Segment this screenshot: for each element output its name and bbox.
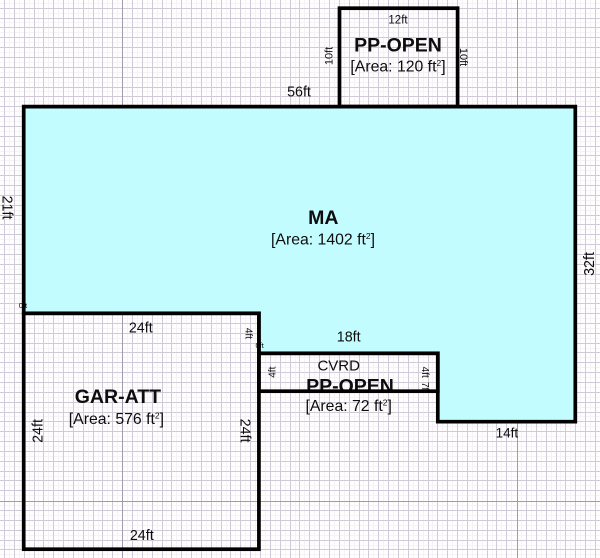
svg-text:PP-OPEN: PP-OPEN [306,376,394,398]
svg-text:[Area: 576 ft2]: [Area: 576 ft2] [69,410,164,428]
svg-text:PP-OPEN: PP-OPEN [354,35,442,57]
svg-text:12ft: 12ft [388,14,408,26]
svg-text:[Area: 72 ft2]: [Area: 72 ft2] [305,397,391,415]
svg-text:MA: MA [308,207,338,229]
svg-text:24ft: 24ft [129,320,153,336]
svg-text:32ft: 32ft [582,252,598,276]
svg-text:14ft: 14ft [496,426,519,441]
svg-text:24ft: 24ft [30,419,46,443]
svg-text:24ft: 24ft [130,528,154,544]
svg-text:18ft: 18ft [337,329,361,345]
svg-text:4ft: 4ft [268,366,279,377]
svg-text:56ft: 56ft [287,85,311,101]
svg-text:[Area: 120 ft2]: [Area: 120 ft2] [350,58,445,76]
svg-text:4ft: 4ft [243,328,254,339]
svg-text:CVRD: CVRD [317,358,360,375]
svg-text:4ft: 4ft [419,367,430,378]
svg-text:24ft: 24ft [237,419,253,443]
svg-text:GAR-ATT: GAR-ATT [75,386,161,408]
svg-text:10ft: 10ft [323,47,335,65]
svg-text:21ft: 21ft [0,196,15,220]
svg-text:[Area: 1402 ft2]: [Area: 1402 ft2] [271,231,375,249]
